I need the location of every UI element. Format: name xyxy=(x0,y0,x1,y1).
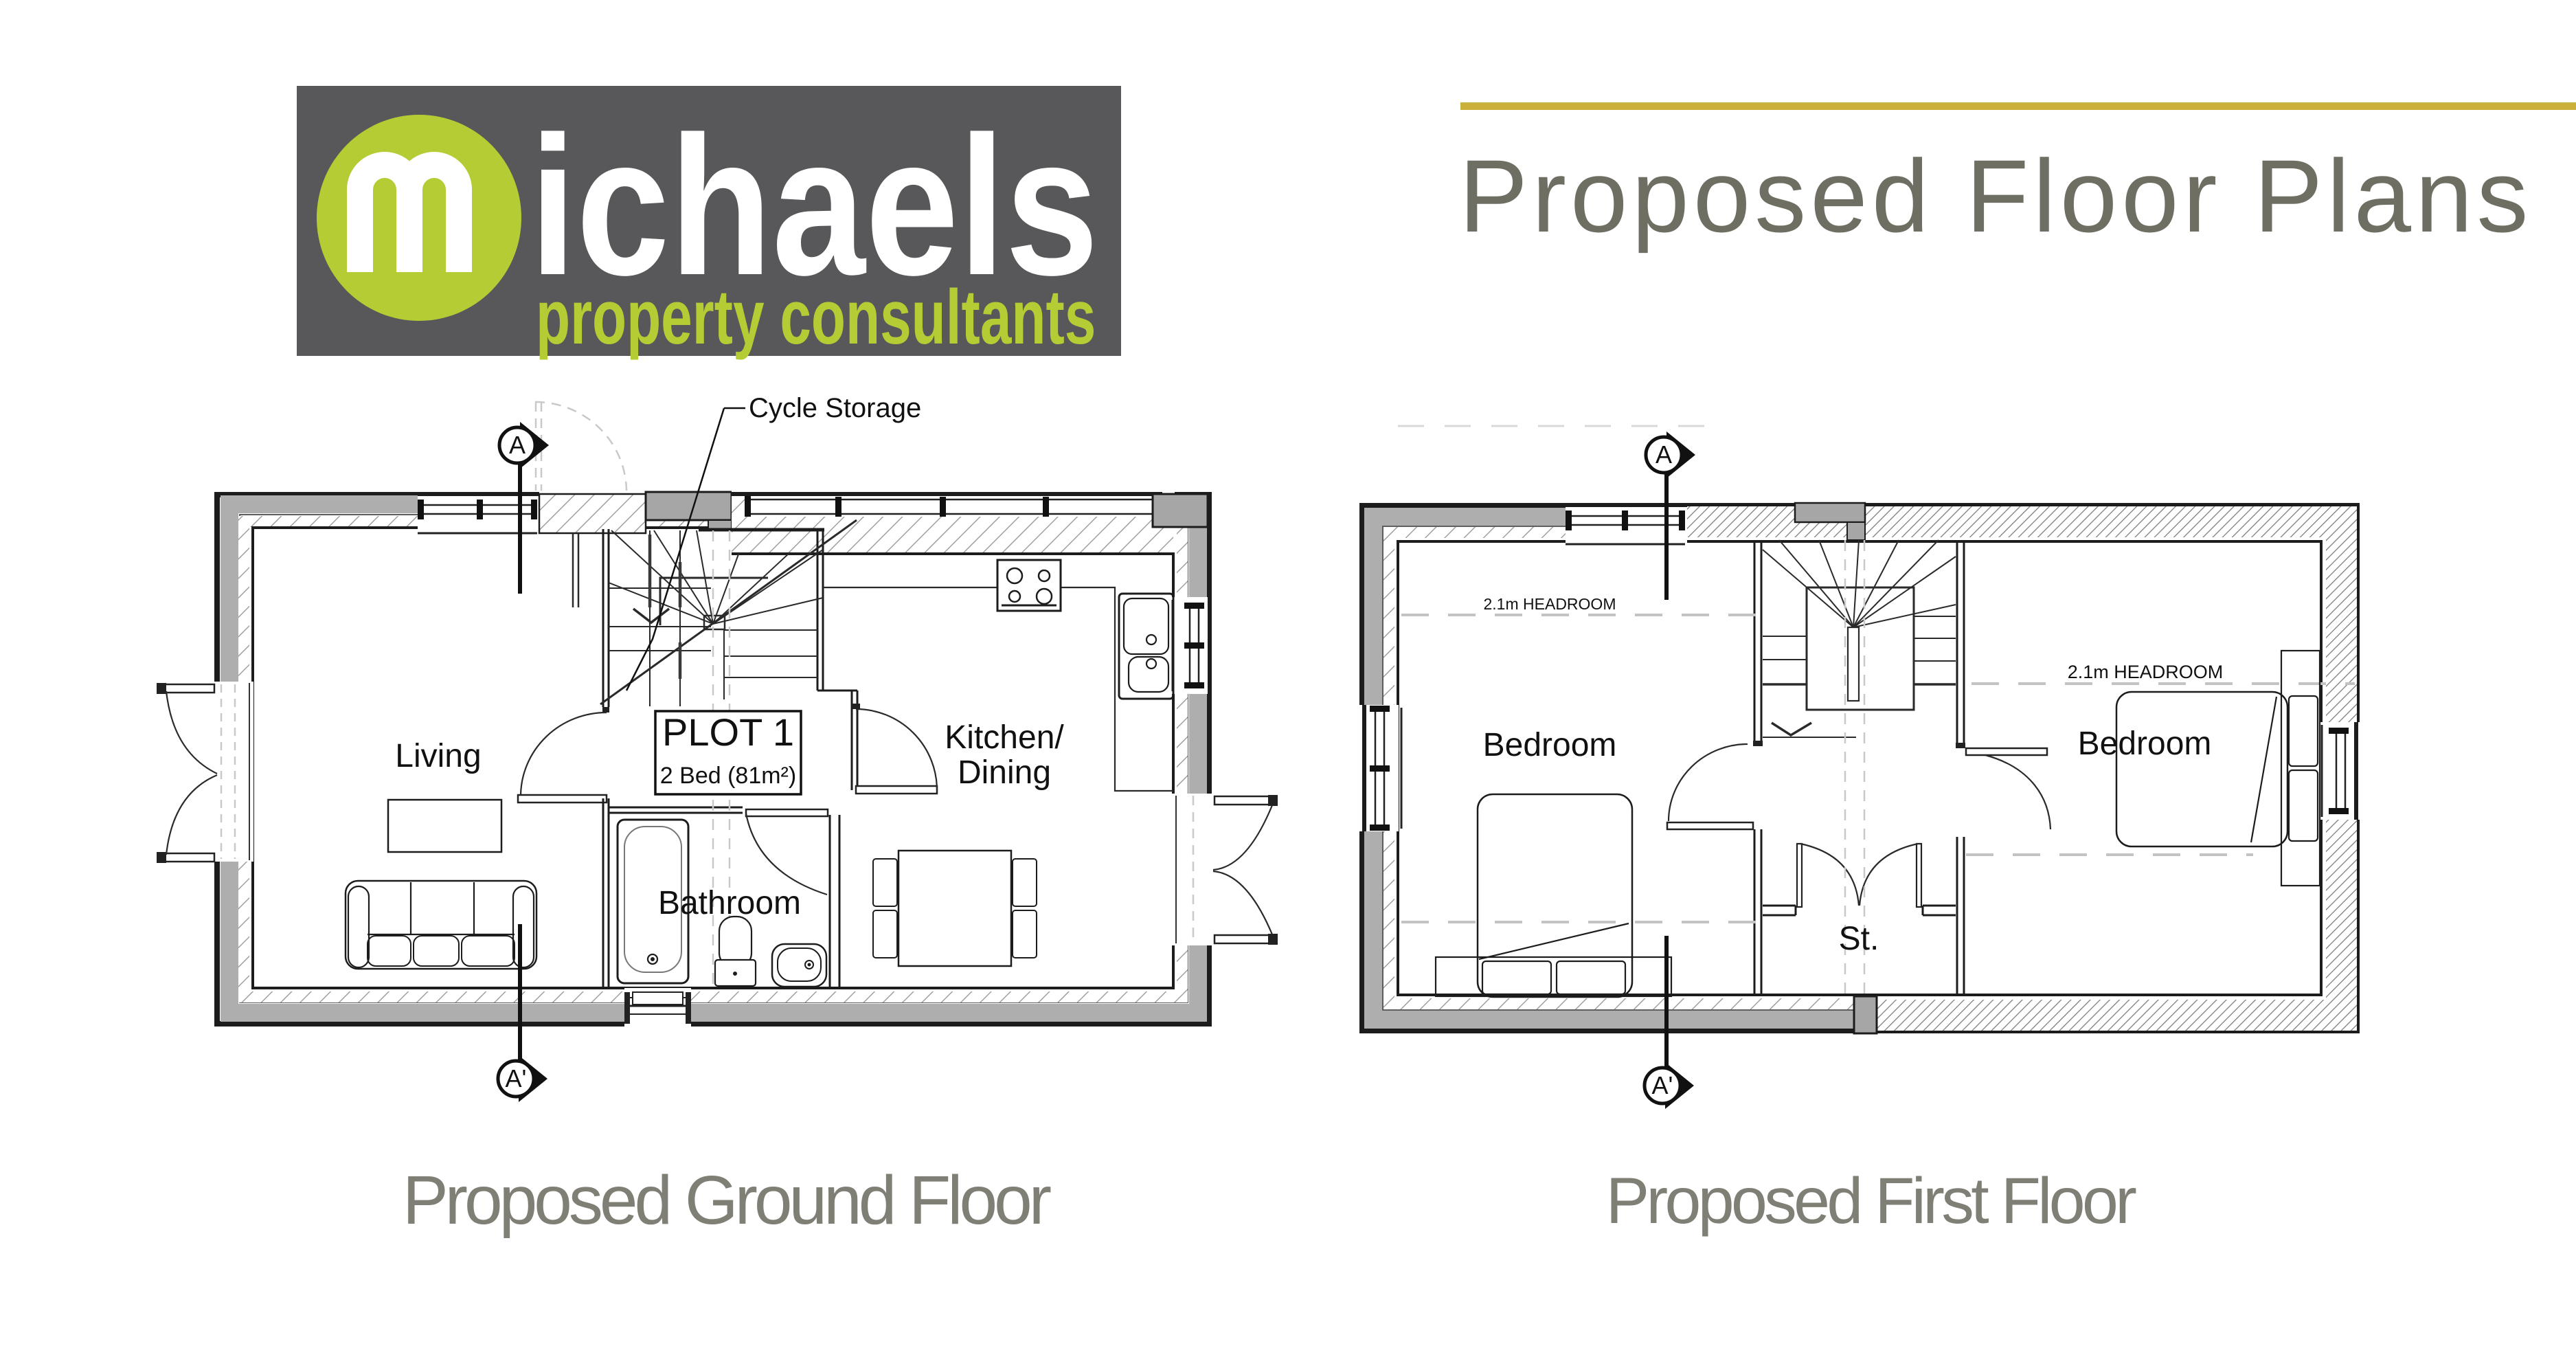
svg-text:St.: St. xyxy=(1839,921,1879,957)
svg-text:Dining: Dining xyxy=(958,754,1051,791)
svg-text:A': A' xyxy=(1652,1071,1673,1099)
svg-text:A: A xyxy=(509,431,526,459)
svg-text:A': A' xyxy=(506,1064,527,1092)
svg-text:Cycle Storage: Cycle Storage xyxy=(749,393,921,423)
svg-text:PLOT 1: PLOT 1 xyxy=(662,710,794,754)
svg-text:2 Bed (81m²): 2 Bed (81m²) xyxy=(660,763,796,789)
svg-text:Kitchen/: Kitchen/ xyxy=(945,719,1064,756)
svg-text:Bedroom: Bedroom xyxy=(1483,727,1617,763)
svg-text:Living: Living xyxy=(395,738,481,774)
svg-text:Bedroom: Bedroom xyxy=(2078,726,2212,762)
svg-text:A: A xyxy=(1656,440,1672,469)
svg-text:2.1m HEADROOM: 2.1m HEADROOM xyxy=(1484,595,1616,613)
svg-text:Bathroom: Bathroom xyxy=(658,885,801,921)
svg-text:2.1m HEADROOM: 2.1m HEADROOM xyxy=(2068,662,2224,682)
